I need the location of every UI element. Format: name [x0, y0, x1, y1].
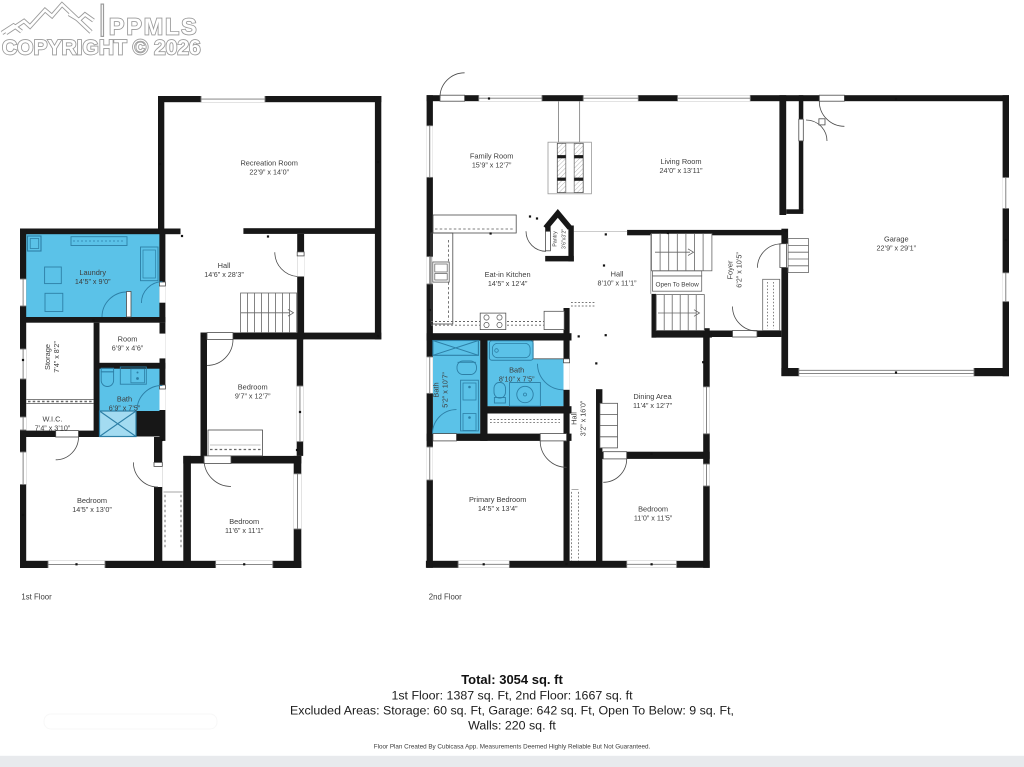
svg-text:22’9” x 29’1”: 22’9” x 29’1” [877, 244, 917, 253]
svg-text:COPYRIGHT © 2026: COPYRIGHT © 2026 [2, 37, 201, 60]
svg-text:22’9” x 14’0”: 22’9” x 14’0” [249, 168, 289, 177]
svg-text:1st Floor: 1387 sq. Ft, 2nd Fl: 1st Floor: 1387 sq. Ft, 2nd Floor: 1667 … [391, 689, 633, 703]
svg-text:Garage: Garage [884, 235, 909, 244]
svg-text:Living Room: Living Room [660, 157, 701, 166]
svg-text:14’5” x 13’0”: 14’5” x 13’0” [72, 505, 112, 514]
svg-text:8’10” x 11’1”: 8’10” x 11’1” [597, 279, 637, 288]
svg-text:8’10” x 7’5”: 8’10” x 7’5” [499, 375, 535, 384]
svg-text:Bath: Bath [117, 395, 132, 404]
svg-text:Bedroom: Bedroom [77, 496, 107, 505]
svg-text:6’9” x 4’6”: 6’9” x 4’6” [112, 344, 144, 353]
svg-text:Walls: 220 sq. ft: Walls: 220 sq. ft [468, 719, 556, 733]
svg-text:Open To Below: Open To Below [655, 281, 699, 288]
svg-text:Laundry: Laundry [79, 268, 106, 277]
svg-text:9’7” x 12’7”: 9’7” x 12’7” [235, 392, 271, 401]
svg-text:14’5” x 9’0”: 14’5” x 9’0” [75, 277, 111, 286]
svg-text:15’9” x 12’7”: 15’9” x 12’7” [472, 161, 512, 170]
svg-text:Bath: Bath [509, 366, 524, 375]
svg-text:14’5” x 13’4”: 14’5” x 13’4” [478, 504, 518, 513]
svg-text:Bedroom: Bedroom [638, 505, 668, 514]
svg-text:11’6” x 11’1”: 11’6” x 11’1” [225, 526, 264, 535]
svg-text:3’6”x3’2”: 3’6”x3’2” [561, 229, 567, 249]
svg-text:Eat-in Kitchen: Eat-in Kitchen [485, 270, 531, 279]
svg-text:3’2” x 16’0”: 3’2” x 16’0” [578, 400, 587, 436]
svg-text:Total: 3054 sq. ft: Total: 3054 sq. ft [461, 672, 563, 687]
svg-text:2nd Floor: 2nd Floor [429, 593, 462, 602]
svg-text:Bedroom: Bedroom [238, 383, 268, 392]
svg-text:14’6” x 28’3”: 14’6” x 28’3” [204, 270, 244, 279]
svg-text:6’2” x 10’5”: 6’2” x 10’5” [734, 252, 743, 288]
svg-text:W.I.C.: W.I.C. [42, 415, 62, 424]
svg-text:Pantry: Pantry [553, 231, 559, 247]
svg-text:6’9” x 7’5”: 6’9” x 7’5” [109, 404, 141, 413]
svg-text:14’5” x 12’4”: 14’5” x 12’4” [488, 279, 528, 288]
svg-text:5’2” x 10’7”: 5’2” x 10’7” [440, 372, 449, 408]
svg-text:Excluded Areas: Storage: 60 sq: Excluded Areas: Storage: 60 sq. Ft, Gara… [290, 704, 734, 718]
svg-text:1st Floor: 1st Floor [21, 593, 52, 602]
svg-text:11’4” x 12’7”: 11’4” x 12’7” [633, 401, 673, 410]
svg-text:Hall: Hall [218, 261, 231, 270]
svg-text:Hall: Hall [611, 270, 624, 279]
svg-text:Bedroom: Bedroom [229, 517, 259, 526]
svg-text:Family Room: Family Room [470, 152, 514, 161]
svg-text:Room: Room [118, 335, 138, 344]
svg-text:11’0” x 11’5”: 11’0” x 11’5” [634, 514, 673, 523]
svg-text:Recreation Room: Recreation Room [240, 159, 298, 168]
svg-text:7’4” x 3’10”: 7’4” x 3’10” [35, 424, 71, 433]
svg-text:Primary Bedroom: Primary Bedroom [469, 495, 527, 504]
svg-text:Dining Area: Dining Area [633, 392, 672, 401]
svg-text:Floor Plan Created By Cubicasa: Floor Plan Created By Cubicasa App. Meas… [374, 744, 651, 751]
svg-text:7’4” x 8’2”: 7’4” x 8’2” [52, 341, 61, 373]
svg-text:24’0” x 13’11”: 24’0” x 13’11” [659, 166, 703, 175]
